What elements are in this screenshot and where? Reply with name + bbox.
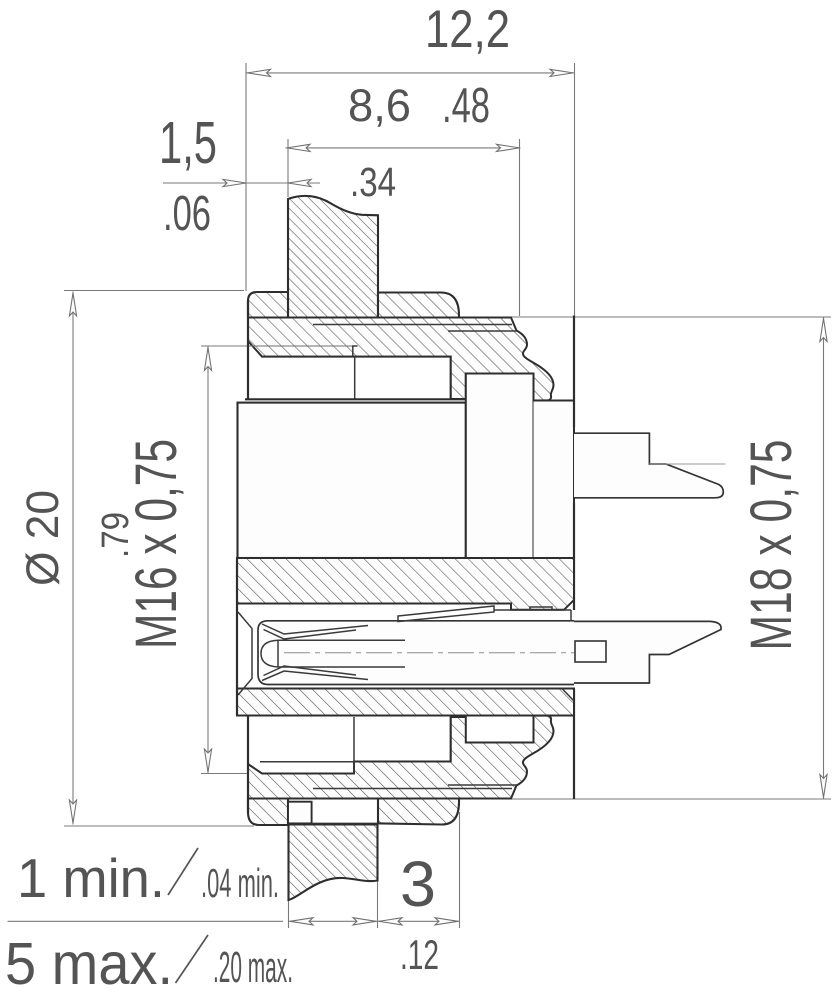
- svg-text:.06: .06: [163, 187, 211, 241]
- svg-text:.20 max.: .20 max.: [213, 943, 293, 992]
- svg-text:12,2: 12,2: [425, 0, 510, 59]
- svg-text:1,5: 1,5: [159, 110, 217, 176]
- svg-text:M16 x 0,75: M16 x 0,75: [124, 439, 189, 649]
- svg-text:.48: .48: [442, 79, 490, 133]
- svg-text:5 max.: 5 max.: [5, 931, 173, 997]
- svg-text:3: 3: [400, 848, 436, 920]
- svg-text:M18 x 0,75: M18 x 0,75: [739, 440, 804, 651]
- svg-text:.34: .34: [350, 159, 396, 205]
- svg-text:.04 min.: .04 min.: [201, 860, 279, 906]
- svg-text:Ø 20: Ø 20: [17, 490, 68, 586]
- svg-text:.12: .12: [400, 931, 439, 978]
- svg-text:1 min.: 1 min.: [17, 847, 165, 909]
- svg-text:8,6: 8,6: [348, 80, 411, 131]
